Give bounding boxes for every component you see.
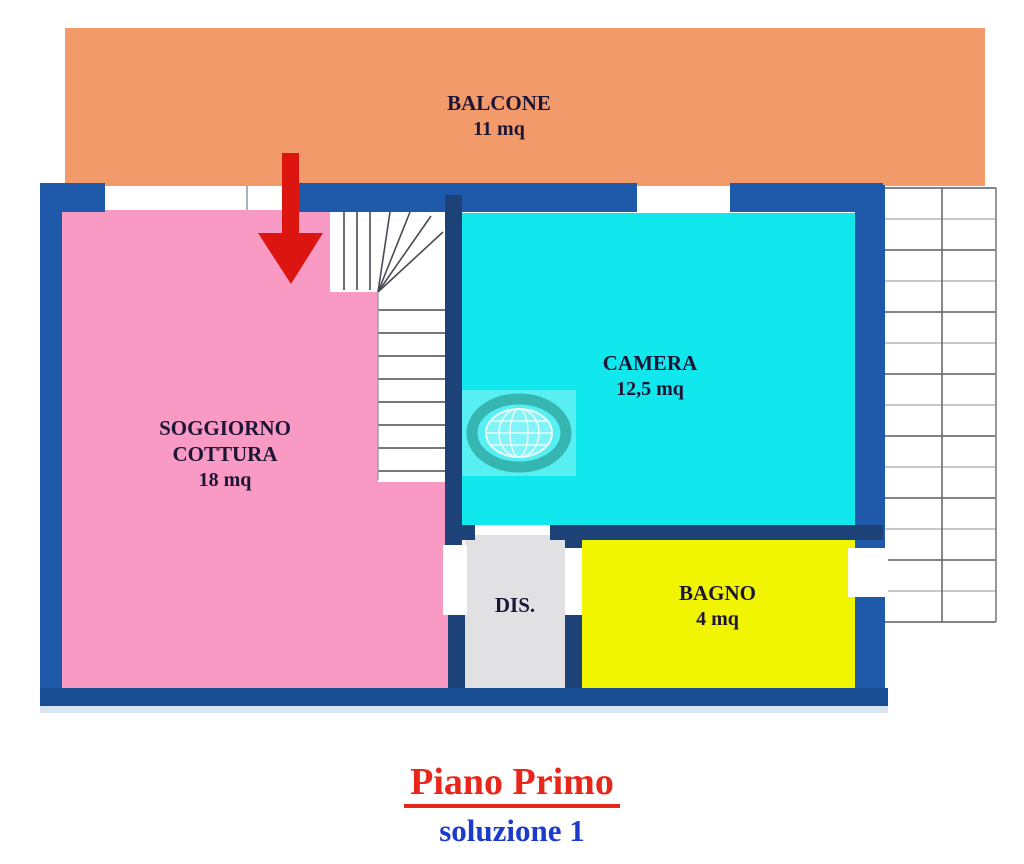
room-balcone-label: BALCONE 11 mq	[65, 90, 933, 142]
room-area: 11 mq	[65, 116, 933, 142]
wall-segment	[855, 597, 885, 688]
page-title: Piano Primo	[404, 762, 620, 808]
room-name: DIS.	[465, 592, 565, 618]
plan-title-row: Piano Primo	[0, 762, 1024, 808]
room-name: CAMERA	[470, 350, 830, 376]
room-name: SOGGIORNO	[70, 415, 380, 441]
external-stairs	[885, 186, 998, 632]
wall-segment	[448, 615, 465, 688]
room-bagno-label: BAGNO 4 mq	[585, 580, 850, 632]
plan-subtitle-row: soluzione 1	[0, 814, 1024, 848]
room-area: 12,5 mq	[470, 376, 830, 402]
wall-segment	[40, 183, 62, 705]
wall-segment	[462, 525, 475, 540]
room-name: COTTURA	[70, 441, 380, 467]
room-name: BAGNO	[585, 580, 850, 606]
wall-shadow	[40, 706, 888, 713]
wall-segment	[550, 525, 883, 540]
globe-watermark-icon	[462, 390, 576, 476]
window-opening	[848, 548, 888, 597]
room-area: 4 mq	[585, 606, 850, 632]
room-soggiorno-label: SOGGIORNO COTTURA 18 mq	[70, 415, 380, 493]
down-arrow-icon	[255, 153, 325, 286]
page-subtitle: soluzione 1	[439, 814, 585, 848]
room-name: BALCONE	[65, 90, 933, 116]
wall-segment	[40, 688, 888, 706]
room-area: 18 mq	[70, 467, 380, 493]
room-camera-label: CAMERA 12,5 mq	[470, 350, 830, 402]
room-dis-label: DIS.	[465, 592, 565, 618]
wall-segment	[565, 615, 582, 688]
wall-segment	[855, 185, 885, 548]
floor-plan: BALCONE 11 mq SOGGIORNO COTTURA 18 mq CA…	[0, 0, 1024, 864]
wall-segment	[565, 525, 582, 548]
door-opening	[443, 545, 467, 615]
wall-segment	[445, 195, 462, 545]
door-jamb-line	[246, 185, 248, 210]
